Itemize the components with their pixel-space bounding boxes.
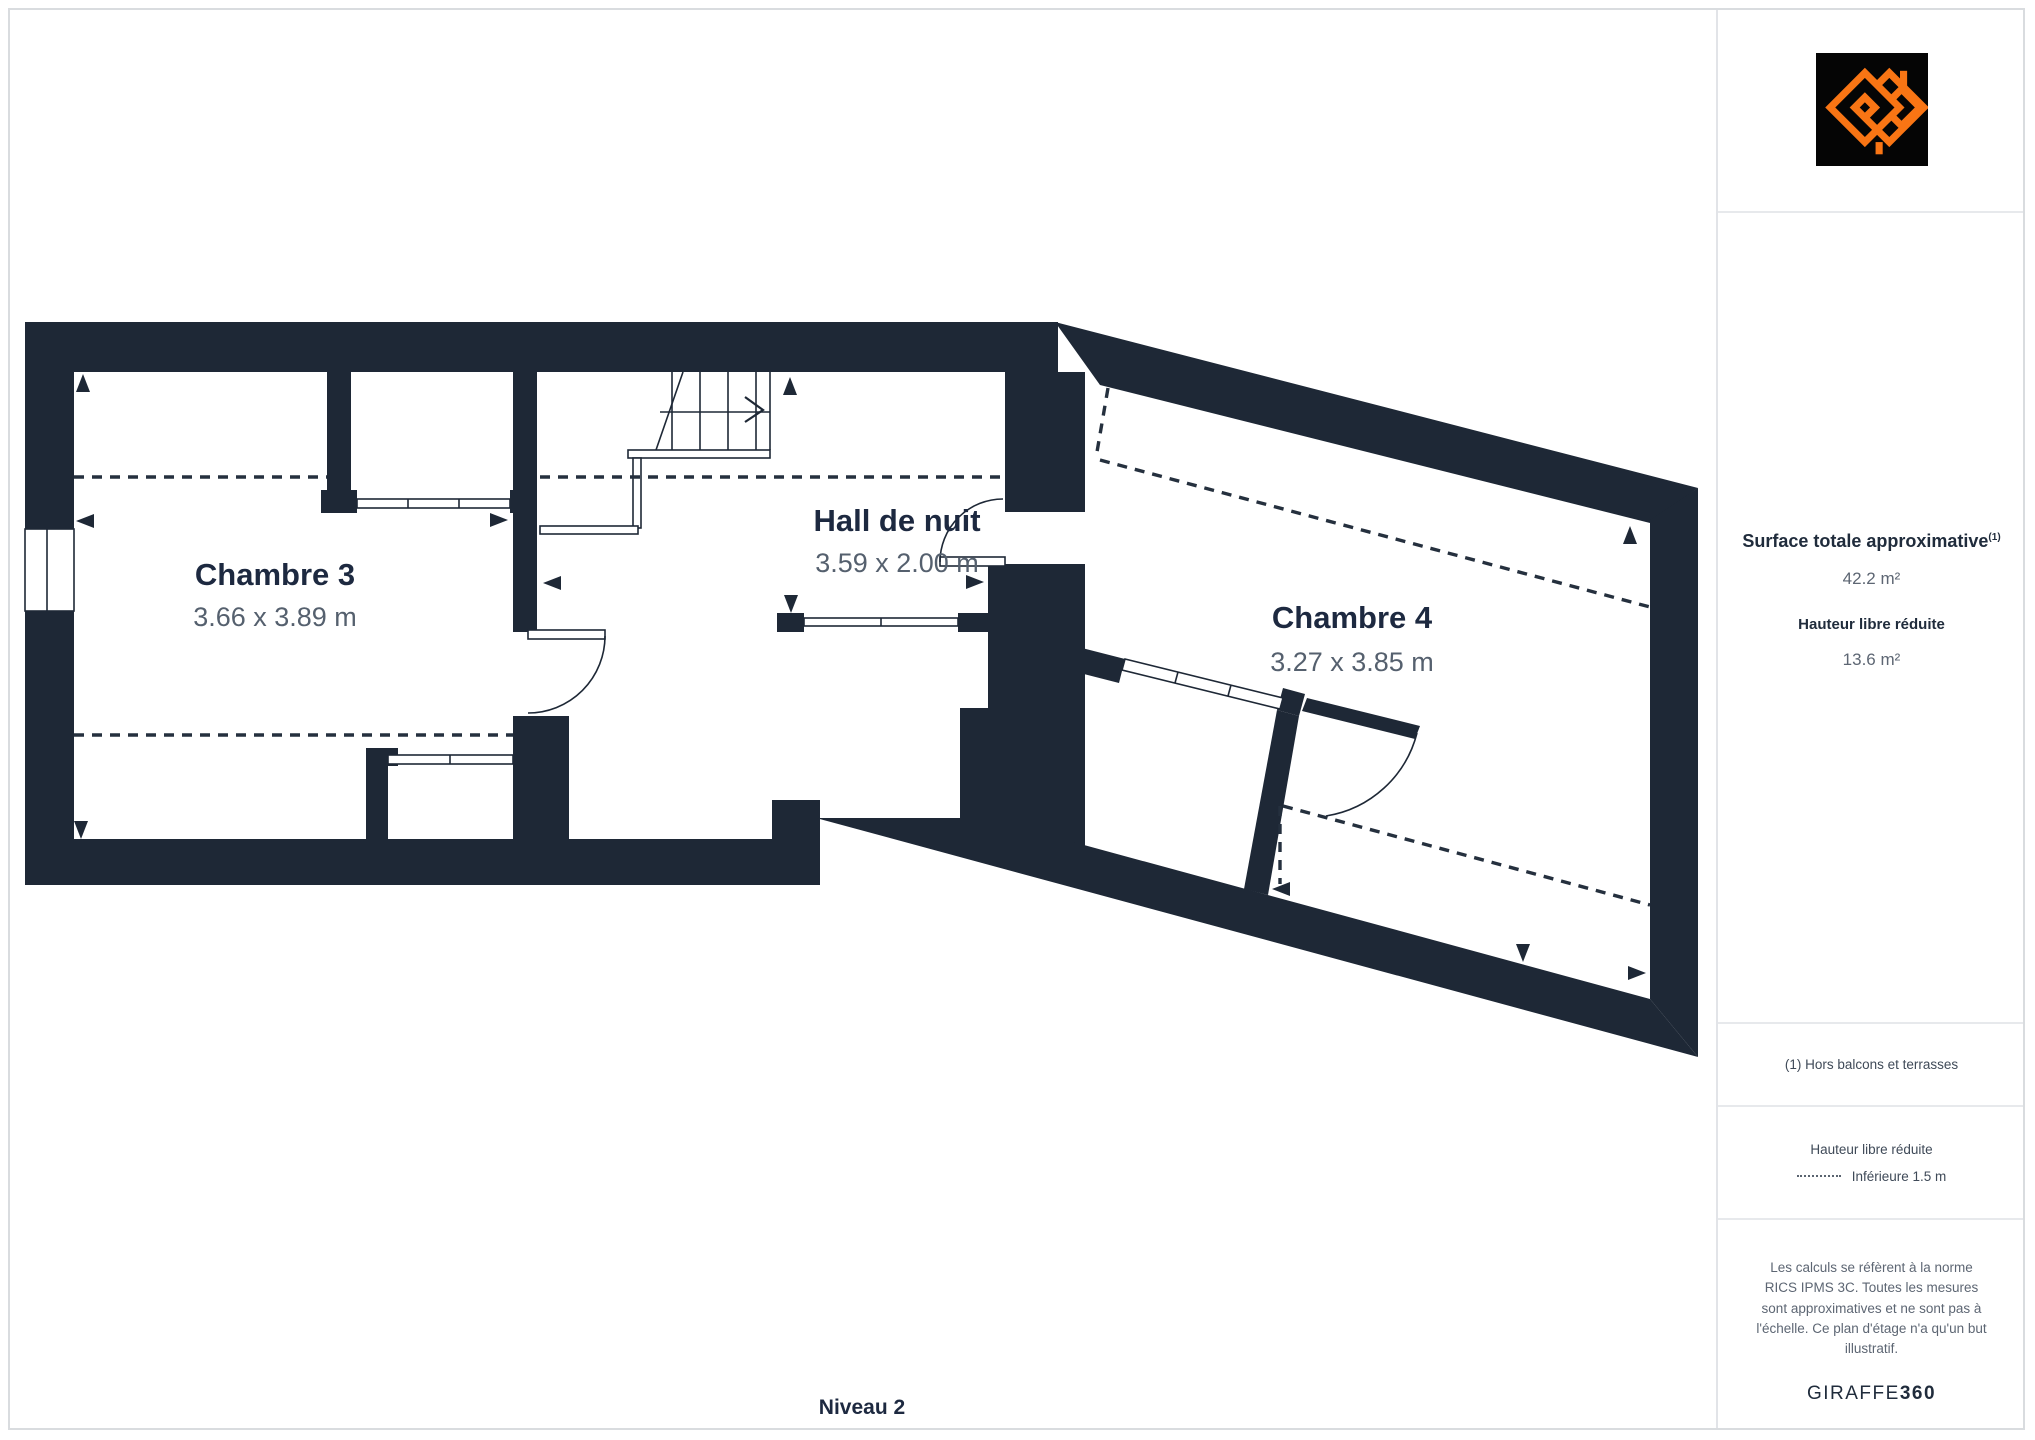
surface-title-sup: (1) — [1988, 532, 2000, 543]
legend-section: Hauteur libre réduite Inférieure 1.5 m — [1718, 1107, 2025, 1220]
level-label: Niveau 2 — [819, 1396, 905, 1419]
window-icon — [25, 529, 74, 611]
arrow-left-icon — [543, 576, 561, 590]
brand-wordmark: GIRAFFE360 — [1718, 1383, 2025, 1405]
legend-title: Hauteur libre réduite — [1810, 1142, 1932, 1157]
arrow-down-icon — [74, 821, 88, 839]
dotted-line-icon — [1797, 1175, 1841, 1177]
disclaimer-section: Les calculs se réfèrent à la norme RICS … — [1718, 1220, 2025, 1405]
footnote-text: (1) Hors balcons et terrasses — [1785, 1057, 1958, 1072]
footnote-section: (1) Hors balcons et terrasses — [1718, 1024, 2025, 1107]
logo-mark-icon — [1816, 53, 1928, 166]
surface-title-text: Surface totale approximative — [1742, 531, 1988, 551]
room-name: Chambre 4 — [1272, 600, 1433, 635]
arrow-up-icon — [783, 377, 797, 395]
sliding-window-icon — [804, 618, 958, 626]
room-name: Hall de nuit — [813, 503, 980, 538]
door-icon — [1326, 733, 1417, 816]
arrow-up-icon — [1623, 526, 1637, 544]
arrow-down-icon — [1516, 944, 1530, 962]
room-dimensions: 3.59 x 2.00 m — [815, 548, 979, 578]
sliding-window-icon — [357, 499, 510, 508]
giraffe360-logo — [1816, 53, 1928, 166]
logo-section — [1718, 10, 2025, 213]
walls — [25, 322, 1698, 1057]
legend-row: Inférieure 1.5 m — [1797, 1169, 1947, 1184]
sliding-window-icon — [388, 755, 513, 764]
legend-item-label: Inférieure 1.5 m — [1852, 1169, 1947, 1184]
arrow-right-icon — [490, 513, 508, 527]
info-sidebar: Surface totale approximative(1) 42.2 m² … — [1716, 10, 2025, 1430]
arrow-up-icon — [76, 374, 90, 392]
room-labels: Chambre 3 3.66 x 3.89 m Hall de nuit 3.5… — [193, 503, 1434, 677]
room-name: Chambre 3 — [195, 557, 355, 592]
surface-title: Surface totale approximative(1) — [1718, 531, 2025, 552]
disclaimer-text: Les calculs se réfèrent à la norme RICS … — [1753, 1258, 1991, 1359]
sliding-window-icon — [1122, 659, 1283, 709]
door-icon — [528, 630, 605, 713]
stairs-icon — [540, 372, 770, 534]
reduced-height-value: 13.6 m² — [1718, 650, 2025, 670]
room-dimensions: 3.27 x 3.85 m — [1270, 647, 1434, 677]
arrow-left-icon — [76, 514, 94, 528]
arrow-down-icon — [784, 595, 798, 613]
dimension-arrows — [74, 374, 1646, 980]
reduced-height-title: Hauteur libre réduite — [1718, 616, 2025, 633]
brand-name: GIRAFFE — [1807, 1383, 1900, 1404]
arrow-left-icon — [1272, 882, 1290, 896]
surface-value: 42.2 m² — [1718, 569, 2025, 589]
brand-suffix: 360 — [1900, 1383, 1936, 1404]
arrow-right-icon — [1628, 966, 1646, 980]
surface-section: Surface totale approximative(1) 42.2 m² … — [1718, 213, 2025, 1024]
room-dimensions: 3.66 x 3.89 m — [193, 602, 357, 632]
